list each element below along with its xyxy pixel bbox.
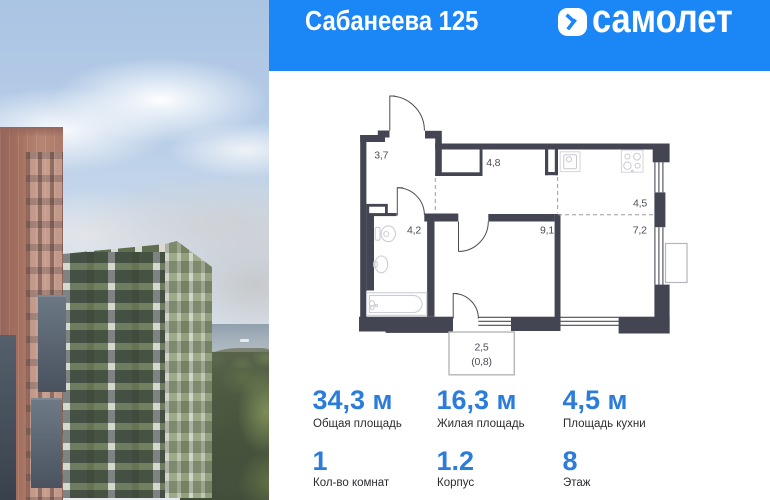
svg-text:9,1: 9,1 (540, 224, 554, 236)
svg-text:4,8: 4,8 (486, 157, 500, 169)
svg-text:2,5: 2,5 (475, 341, 489, 353)
svg-text:3,7: 3,7 (374, 149, 388, 161)
svg-text:(0,8): (0,8) (471, 356, 492, 368)
svg-text:4,5: 4,5 (633, 198, 647, 210)
svg-text:7,2: 7,2 (633, 224, 647, 236)
svg-text:4,2: 4,2 (407, 224, 421, 236)
